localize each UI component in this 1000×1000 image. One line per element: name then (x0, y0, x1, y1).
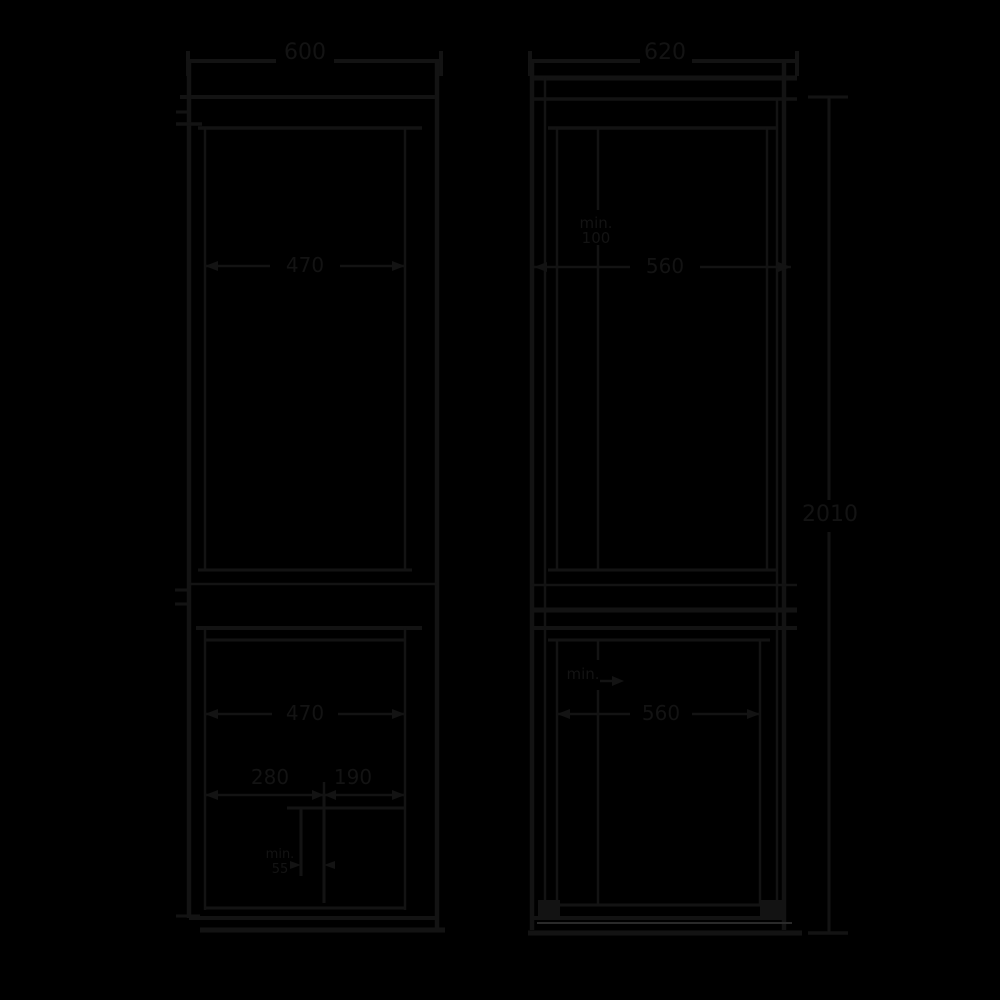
side-view: 620 min. 100 560 (528, 40, 858, 933)
front-chained-dimension: 280 190 (205, 765, 405, 807)
front-freezer-dimension: 470 (205, 701, 405, 725)
side-upper-clearance-label-line2: 100 (582, 229, 611, 247)
front-upper-door (198, 128, 422, 570)
side-freezer-depth-dimension: 560 (557, 701, 760, 725)
front-foot-detail-label-line1: min. (266, 847, 295, 862)
side-body-depth-dimension: 560 (532, 254, 791, 278)
side-freezer-note: min. (566, 665, 624, 686)
side-cabinet-outline (530, 61, 797, 930)
front-overall-width-label: 600 (284, 40, 326, 65)
front-door-divider (175, 584, 437, 604)
front-freezer-width-label: 470 (286, 701, 324, 725)
fridge-freezer-dimension-diagram: 600 470 (0, 0, 1000, 1000)
front-foot-detail-label-line2: 55 (272, 862, 289, 877)
side-overall-height-dimension: 2010 (802, 97, 858, 933)
side-overall-height-label: 2010 (802, 502, 858, 527)
front-lower-right-width-label: 190 (334, 765, 372, 789)
front-upper-door-width-label: 470 (286, 253, 324, 277)
front-overall-width-dimension: 600 (188, 40, 441, 76)
side-overall-depth-label: 620 (644, 40, 686, 65)
side-compartment-divider (532, 585, 797, 610)
side-freezer-note-label: min. (566, 665, 599, 683)
side-overall-depth-dimension: 620 (530, 40, 797, 76)
front-foot-detail: min. 55 (266, 795, 405, 903)
front-upper-door-dimension: 470 (205, 253, 405, 277)
side-freezer-depth-label: 560 (642, 701, 680, 725)
front-lower-left-width-label: 280 (251, 765, 289, 789)
side-upper-door: min. 100 (548, 128, 776, 570)
front-view: 600 470 (175, 40, 445, 930)
dimension-drawing-page: 600 470 (0, 0, 1000, 1000)
side-body-depth-label: 560 (646, 254, 684, 278)
front-freezer-door (196, 628, 422, 910)
